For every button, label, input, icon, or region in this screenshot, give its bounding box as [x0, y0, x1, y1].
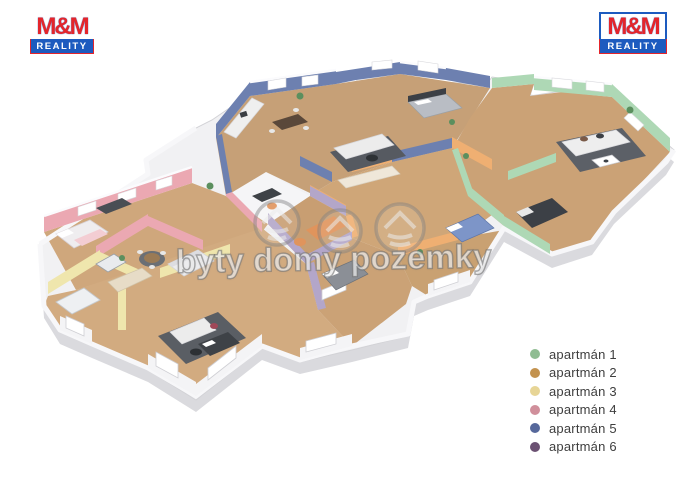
logo-wordmark: M&M: [30, 14, 94, 39]
legend-item-apartman-2: apartmán 2: [530, 364, 617, 382]
legend-dot-apartman-1: [530, 349, 540, 359]
legend-dot-apartman-6: [530, 442, 540, 452]
legend-label: apartmán 1: [549, 347, 617, 362]
mm-reality-logo-left: M&M REALITY: [30, 14, 94, 54]
logo-mm-text: M&M: [36, 15, 87, 39]
legend-item-apartman-1: apartmán 1: [530, 345, 617, 363]
logo-wordmark: M&M: [599, 12, 667, 39]
legend-label: apartmán 3: [549, 384, 617, 399]
legend-label: apartmán 6: [549, 439, 617, 454]
logo-banner: REALITY: [599, 39, 667, 54]
apartment-legend: apartmán 1 apartmán 2 apartmán 3 apartmá…: [530, 345, 617, 456]
house-in-circle-icon: [255, 201, 299, 245]
watermark-text: byty domy pozemky: [176, 237, 497, 281]
legend-dot-apartman-4: [530, 405, 540, 415]
logo-banner: REALITY: [30, 39, 94, 54]
legend-label: apartmán 2: [549, 365, 617, 380]
legend-dot-apartman-2: [530, 368, 540, 378]
legend-item-apartman-4: apartmán 4: [530, 401, 617, 419]
legend-item-apartman-5: apartmán 5: [530, 419, 617, 437]
legend-label: apartmán 5: [549, 421, 617, 436]
legend-item-apartman-3: apartmán 3: [530, 382, 617, 400]
legend-item-apartman-6: apartmán 6: [530, 438, 617, 456]
legend-dot-apartman-3: [530, 386, 540, 396]
legend-dot-apartman-5: [530, 423, 540, 433]
legend-label: apartmán 4: [549, 402, 617, 417]
logo-mm-text: M&M: [607, 15, 658, 39]
mm-reality-logo-right: M&M REALITY: [599, 12, 667, 54]
floor-plan-image: byty domy pozemky M&M REALITY M&M REALIT…: [0, 0, 686, 484]
